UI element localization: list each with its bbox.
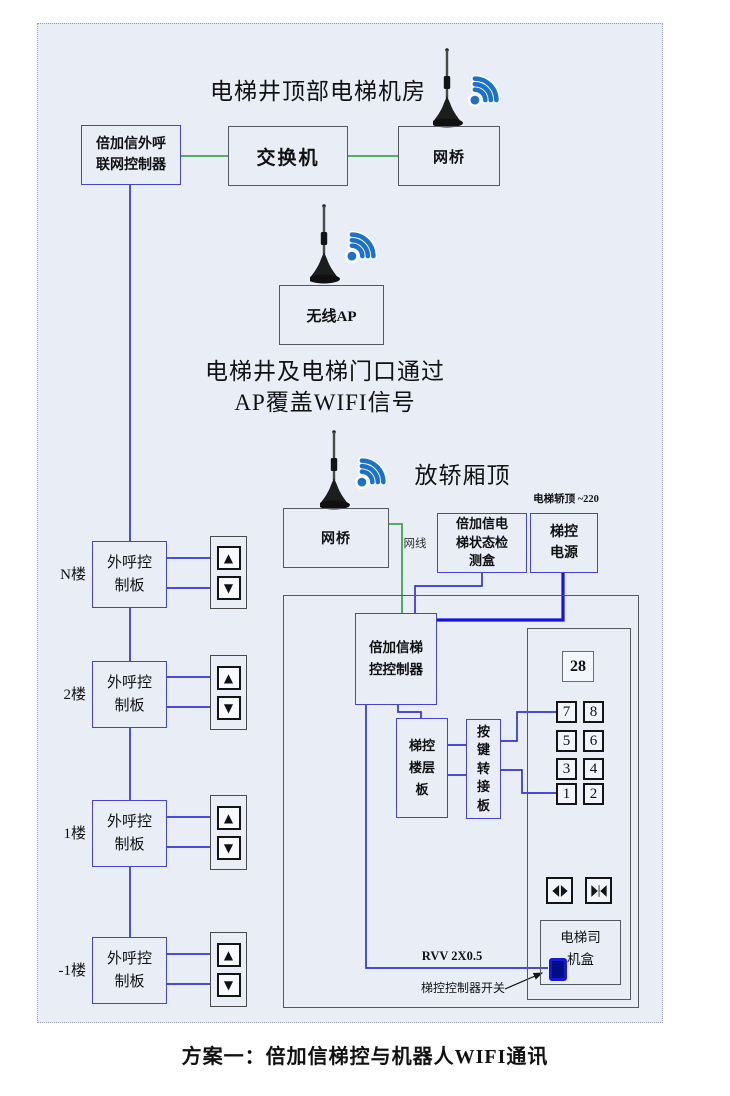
call-up-button[interactable]: ▲ (217, 806, 241, 830)
wireless-ap-box: 无线AP (279, 285, 384, 345)
shaft-note-line1: 电梯井及电梯门口通过 (180, 352, 470, 386)
door-open-icon (551, 882, 569, 900)
up-arrow-icon: ▲ (224, 672, 233, 684)
call-down-button[interactable]: ▼ (217, 973, 241, 997)
lift-controller-box: 倍加信梯 控控制器 (355, 613, 437, 705)
door-close-icon (590, 882, 608, 900)
floor-display: 28 (562, 651, 594, 682)
up-arrow-icon: ▲ (224, 949, 233, 961)
ethernet-switch-box: 交换机 (228, 126, 348, 186)
controller-switch-label: 梯控控制器开关 (418, 979, 508, 996)
call-down-button[interactable]: ▼ (217, 696, 241, 720)
rvv-cable-label: RVV 2X0.5 (418, 949, 486, 964)
call-board-1: 外呼控 制板 (92, 800, 167, 867)
floor-label-1: 1楼 (40, 822, 86, 843)
call-up-button[interactable]: ▲ (217, 943, 241, 967)
cartop-title: 放轿厢顶 (405, 456, 520, 490)
down-arrow-icon: ▼ (224, 979, 233, 991)
cartop-power-note: 电梯轿顶 ~220 (522, 491, 610, 506)
cable-label: 网线 (401, 535, 429, 551)
up-arrow-icon: ▲ (224, 812, 233, 824)
machine-room-title: 电梯井顶部电梯机房 (206, 72, 430, 106)
call-board-2: 外呼控 制板 (92, 661, 167, 728)
diagram-caption: 方案一：倍加信梯控与机器人WIFI通讯 (100, 1040, 630, 1069)
floor-button-4[interactable]: 4 (583, 758, 604, 780)
floor-button-8[interactable]: 8 (583, 701, 604, 723)
floor-button-1[interactable]: 1 (556, 783, 577, 805)
antenna-wifi-icon (320, 428, 390, 512)
floor-button-3[interactable]: 3 (556, 758, 577, 780)
down-arrow-icon: ▼ (224, 582, 233, 594)
floor-button-6[interactable]: 6 (583, 730, 604, 752)
network-bridge-top-box: 网桥 (398, 126, 500, 186)
floor-button-7[interactable]: 7 (556, 701, 577, 723)
call-button-panel-n: ▲ ▼ (210, 536, 247, 609)
call-up-button[interactable]: ▲ (217, 546, 241, 570)
up-arrow-icon: ▲ (224, 552, 233, 564)
shaft-note-line2: AP覆盖WIFI信号 (180, 383, 470, 417)
door-open-button[interactable] (546, 877, 573, 904)
antenna-wifi-icon (310, 202, 380, 286)
net-call-controller-box: 倍加信外呼 联网控制器 (81, 125, 181, 185)
floor-button-2[interactable]: 2 (583, 783, 604, 805)
elevator-status-detect-box: 倍加信电 梯状态检 测盒 (437, 513, 527, 573)
lift-control-power-box: 梯控 电源 (530, 513, 598, 573)
call-button-panel-minus1: ▲ ▼ (210, 932, 247, 1007)
call-button-panel-2: ▲ ▼ (210, 655, 247, 730)
down-arrow-icon: ▼ (224, 702, 233, 714)
floor-label-2: 2楼 (40, 683, 86, 704)
floor-label-n: N楼 (40, 563, 86, 584)
call-up-button[interactable]: ▲ (217, 666, 241, 690)
door-close-button[interactable] (585, 877, 612, 904)
call-button-panel-1: ▲ ▼ (210, 795, 247, 870)
call-down-button[interactable]: ▼ (217, 836, 241, 860)
network-bridge-cartop-box: 网桥 (283, 508, 389, 568)
antenna-wifi-icon (433, 46, 503, 130)
call-board-n: 外呼控 制板 (92, 541, 167, 608)
key-adapter-box: 按 键 转 接 板 (466, 719, 501, 819)
down-arrow-icon: ▼ (224, 842, 233, 854)
call-down-button[interactable]: ▼ (217, 576, 241, 600)
call-board-minus1: 外呼控 制板 (92, 937, 167, 1004)
floor-board-box: 梯控 楼层 板 (396, 718, 448, 818)
floor-button-5[interactable]: 5 (556, 730, 577, 752)
floor-label-minus1: -1楼 (40, 959, 86, 980)
controller-switch-indicator[interactable] (549, 958, 567, 981)
